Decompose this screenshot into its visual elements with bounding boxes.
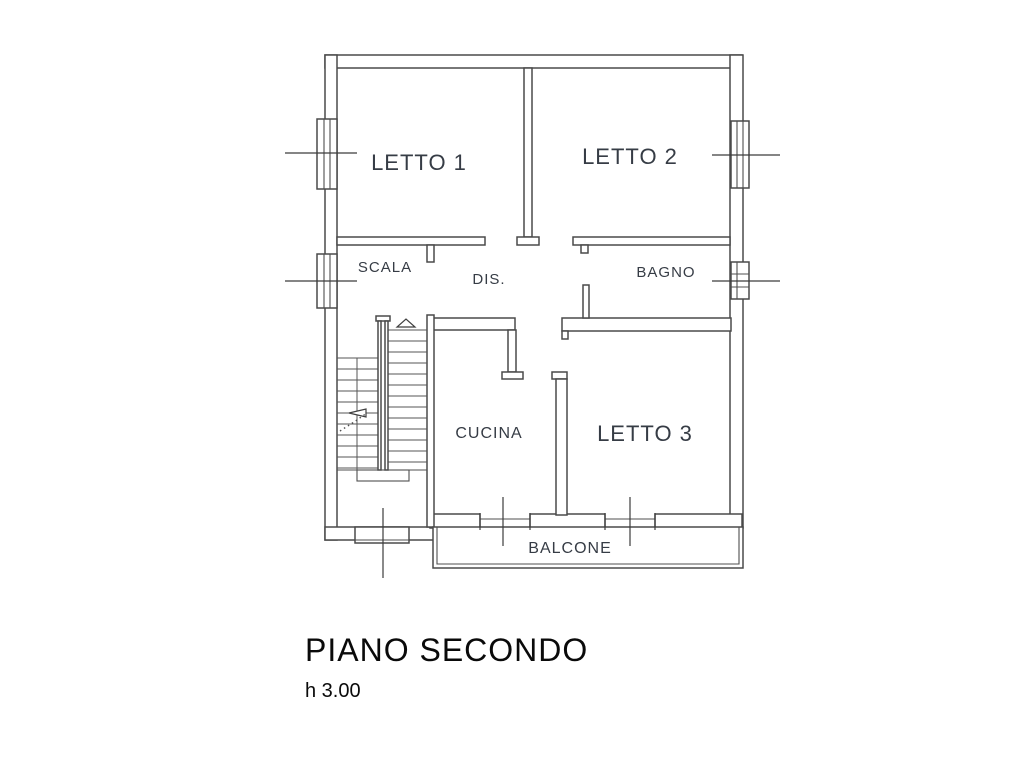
wall-bottom-seg3 [655, 514, 742, 528]
window-letto2 [712, 121, 780, 188]
staircase [337, 316, 427, 481]
stair-up-arrow-icon [397, 319, 415, 327]
window-scala [285, 254, 357, 308]
window-bagno [712, 262, 780, 299]
plan-title: PIANO SECONDO [305, 632, 588, 668]
room-label-letto3: LETTO 3 [597, 421, 693, 446]
plan-height-label: h 3.00 [305, 680, 361, 702]
room-label-dis: DIS. [472, 271, 505, 288]
wall-top [325, 55, 742, 68]
wall-bottom-seg2 [530, 514, 605, 528]
stair-direction-arrow-icon [340, 409, 367, 431]
room-label-bagno: BAGNO [636, 264, 695, 281]
interior-walls [337, 68, 731, 527]
stair-treads-right-flight [388, 330, 427, 462]
room-label-balcone: BALCONE [528, 540, 611, 557]
wall-bottom-seg1 [430, 514, 480, 528]
window-letto1 [285, 119, 357, 189]
stair-landing [337, 470, 427, 481]
stair-stringer [376, 316, 390, 470]
room-label-letto2: LETTO 2 [582, 144, 678, 169]
room-label-letto1: LETTO 1 [371, 150, 467, 175]
room-label-cucina: CUCINA [455, 425, 522, 442]
floor-plan-canvas: LETTO 1 LETTO 2 SCALA DIS. BAGNO CUCINA … [0, 0, 1024, 768]
room-label-scala: SCALA [358, 259, 412, 276]
entry-step [355, 508, 409, 578]
